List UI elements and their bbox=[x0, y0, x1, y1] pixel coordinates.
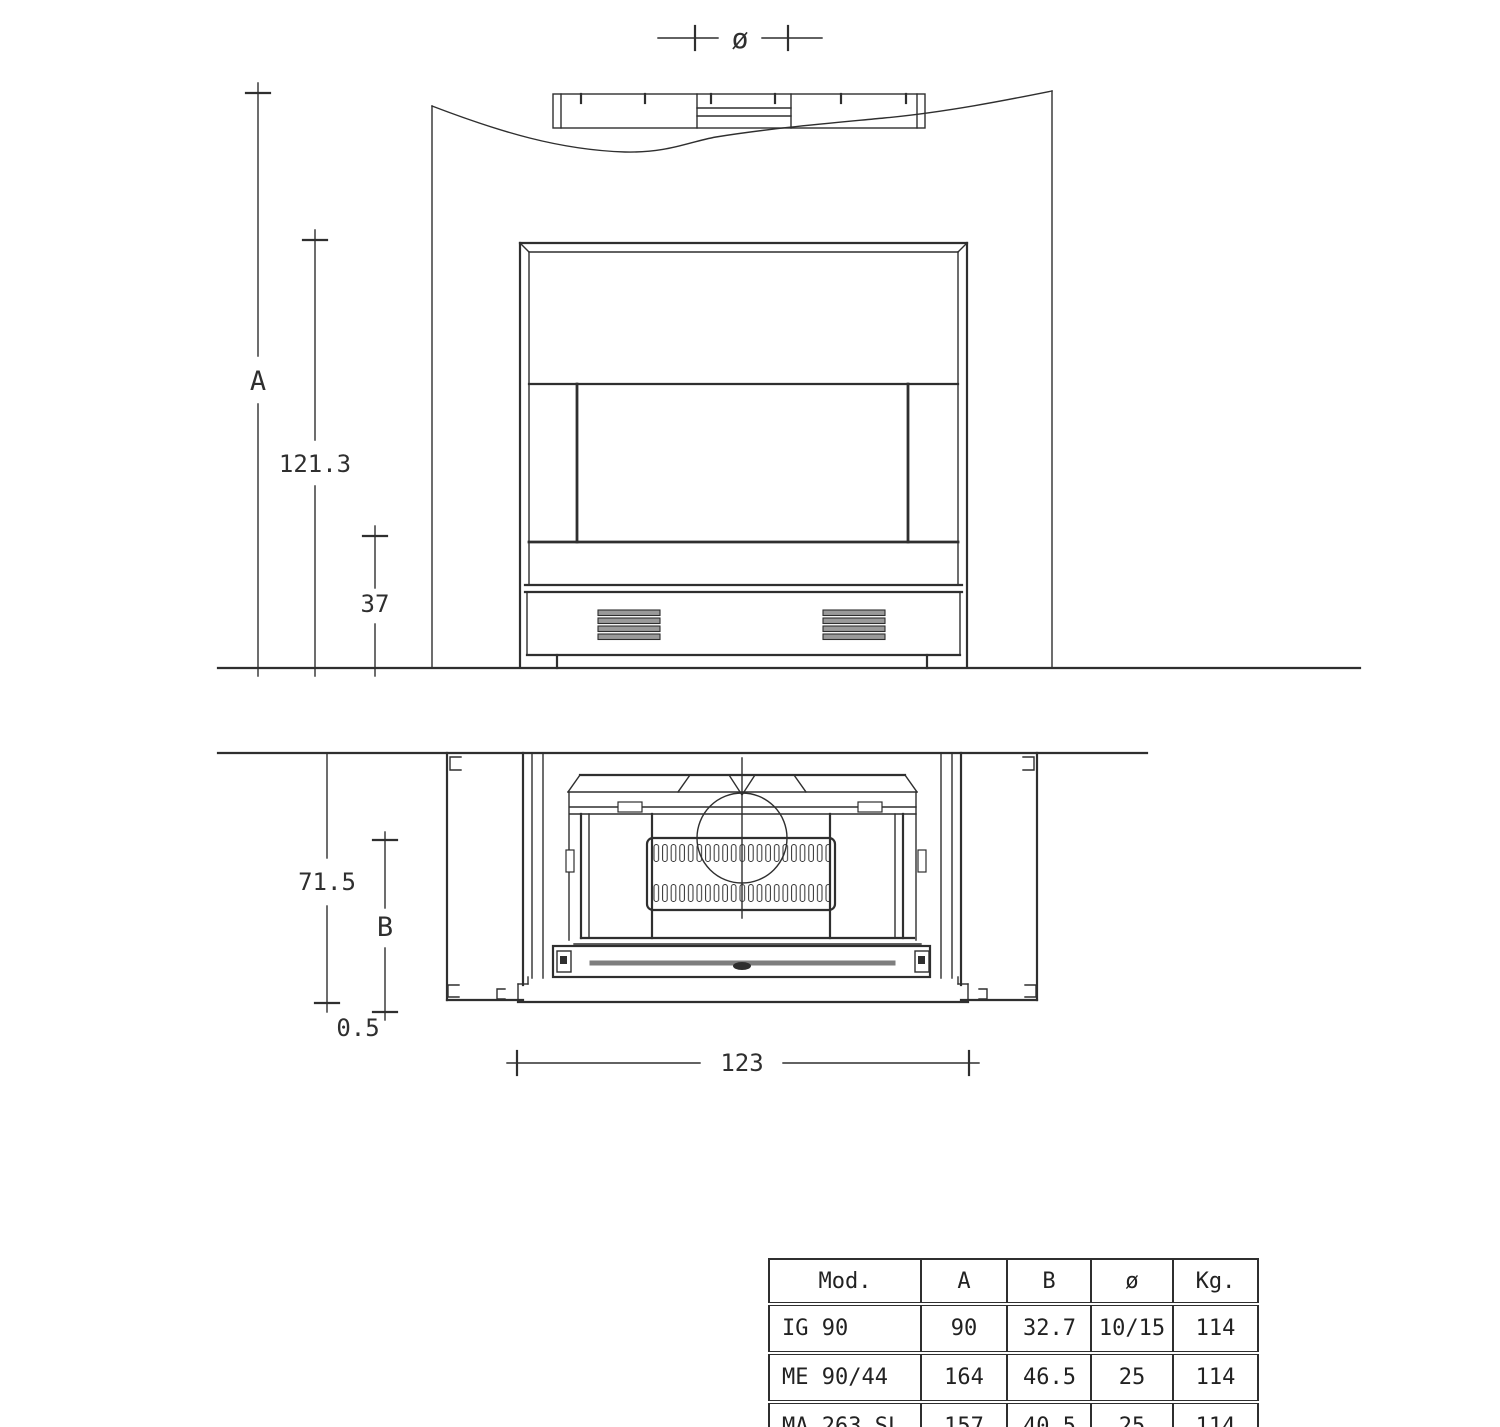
cell-kg: 114 bbox=[1173, 1402, 1258, 1427]
cell-kg: 114 bbox=[1173, 1304, 1258, 1353]
dim-label-37: 37 bbox=[361, 590, 390, 618]
plan-view bbox=[218, 753, 1147, 1002]
cell-model: MA 263 SL bbox=[769, 1402, 921, 1427]
wall-outline bbox=[218, 91, 1360, 668]
dimension-121-3: 121.3 bbox=[279, 230, 351, 676]
cell-b: 46.5 bbox=[1007, 1353, 1091, 1402]
wall-break-line bbox=[432, 91, 1052, 152]
fireplace-frame bbox=[520, 243, 967, 668]
cell-a: 164 bbox=[921, 1353, 1007, 1402]
dim-label-123: 123 bbox=[720, 1049, 763, 1077]
grille-panel bbox=[647, 838, 835, 910]
dimension-123: 123 bbox=[507, 1049, 979, 1077]
right-wall-section bbox=[941, 753, 1037, 1000]
dim-label-71-5: 71.5 bbox=[298, 868, 356, 896]
dim-label-diameter: ø bbox=[732, 22, 749, 55]
cell-kg: 114 bbox=[1173, 1353, 1258, 1402]
cell-diameter: 25 bbox=[1091, 1402, 1173, 1427]
plate-screw-ticks bbox=[581, 94, 906, 103]
cell-model: ME 90/44 bbox=[769, 1353, 921, 1402]
cell-a: 157 bbox=[921, 1402, 1007, 1427]
dimension-b: B bbox=[373, 832, 397, 1020]
cell-b: 40.5 bbox=[1007, 1402, 1091, 1427]
dim-label-a: A bbox=[250, 366, 266, 397]
dimension-37: 37 bbox=[361, 526, 390, 676]
cell-model: IG 90 bbox=[769, 1304, 921, 1353]
vent-grille-left bbox=[598, 610, 660, 640]
front-bar bbox=[518, 946, 968, 1002]
diameter-dimension: ø bbox=[658, 22, 822, 55]
left-wall-section bbox=[447, 753, 543, 1000]
dimension-a: A bbox=[246, 83, 270, 676]
dim-label-121-3: 121.3 bbox=[279, 450, 351, 478]
cell-a: 90 bbox=[921, 1304, 1007, 1353]
col-header-b: B bbox=[1007, 1259, 1091, 1304]
col-header-diameter: ø bbox=[1091, 1259, 1173, 1304]
dimension-0-5: 0.5 bbox=[336, 1014, 379, 1042]
spec-table-header-row: Mod. A B ø Kg. bbox=[769, 1259, 1258, 1304]
technical-drawing-page: ø bbox=[0, 0, 1500, 1427]
col-header-mod: Mod. bbox=[769, 1259, 921, 1304]
col-header-kg: Kg. bbox=[1173, 1259, 1258, 1304]
spec-table: Mod. A B ø Kg. IG 90 90 32.7 10/15 114 M… bbox=[768, 1258, 1259, 1427]
dimension-71-5: 71.5 bbox=[298, 753, 356, 1012]
fireplace-technical-drawing: ø bbox=[0, 0, 1500, 1427]
cell-b: 32.7 bbox=[1007, 1304, 1091, 1353]
dim-label-b: B bbox=[377, 912, 393, 943]
dim-label-0-5: 0.5 bbox=[336, 1014, 379, 1042]
vent-grille-right bbox=[823, 610, 885, 640]
table-row-ma263sl: MA 263 SL 157 40.5 25 114 bbox=[769, 1402, 1258, 1427]
col-header-a: A bbox=[921, 1259, 1007, 1304]
table-row-me9044: ME 90/44 164 46.5 25 114 bbox=[769, 1353, 1258, 1402]
mounting-plate bbox=[432, 91, 1052, 152]
cell-diameter: 25 bbox=[1091, 1353, 1173, 1402]
front-elevation bbox=[218, 91, 1360, 668]
table-row-ig90: IG 90 90 32.7 10/15 114 bbox=[769, 1304, 1258, 1353]
cell-diameter: 10/15 bbox=[1091, 1304, 1173, 1353]
